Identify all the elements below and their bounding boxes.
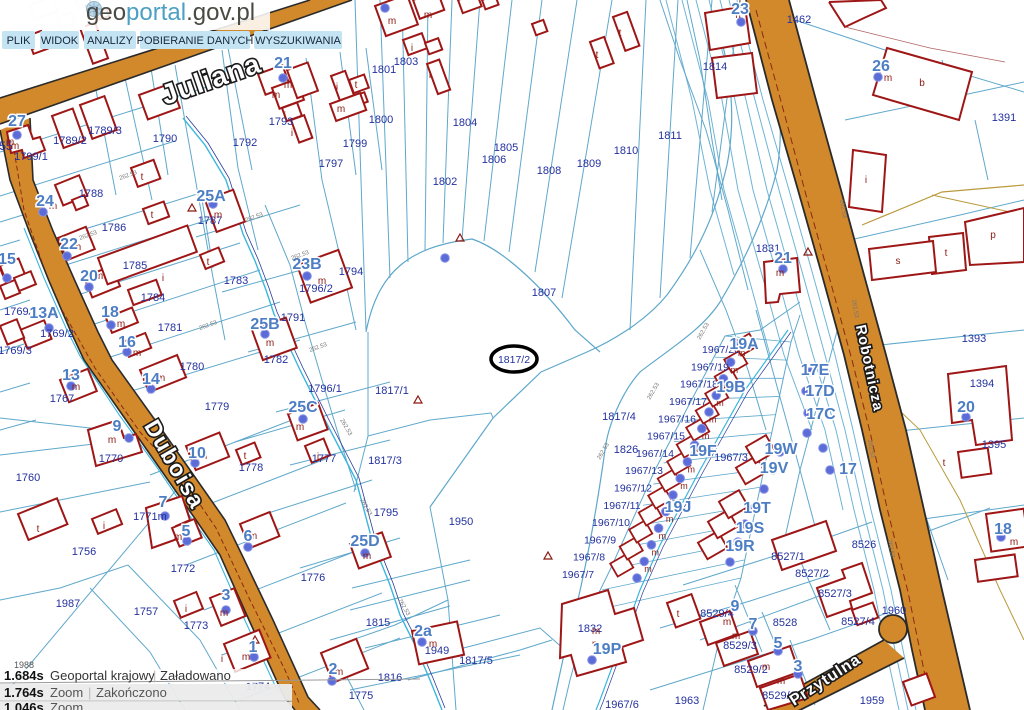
svg-text:m: m — [1010, 537, 1018, 548]
svg-text:m: m — [108, 435, 116, 446]
svg-text:1967/10: 1967/10 — [592, 517, 630, 529]
svg-text:5: 5 — [182, 523, 191, 540]
svg-text:1803: 1803 — [394, 56, 418, 68]
svg-text:19T: 19T — [743, 500, 771, 517]
svg-text:t: t — [943, 458, 946, 469]
svg-text:1771m: 1771m — [133, 511, 167, 523]
svg-text:1967/13: 1967/13 — [625, 465, 663, 477]
svg-text:1967/9: 1967/9 — [584, 534, 616, 546]
svg-text:1788: 1788 — [79, 188, 103, 200]
svg-text:1987: 1987 — [56, 598, 80, 610]
svg-text:i: i — [103, 521, 105, 532]
svg-text:m: m — [680, 481, 688, 491]
svg-text:1967/3: 1967/3 — [714, 452, 748, 464]
svg-text:m: m — [709, 415, 717, 425]
svg-text:1780: 1780 — [180, 361, 204, 373]
svg-text:1782: 1782 — [264, 354, 288, 366]
svg-text:1773: 1773 — [184, 620, 208, 632]
svg-text:1775: 1775 — [349, 690, 373, 702]
svg-text:i: i — [221, 654, 223, 665]
svg-text:m: m — [284, 80, 292, 91]
svg-text:1776: 1776 — [301, 572, 325, 584]
svg-text:19J: 19J — [665, 499, 692, 516]
svg-text:10: 10 — [188, 445, 206, 462]
svg-text:m: m — [731, 365, 739, 375]
svg-text:1967/6: 1967/6 — [605, 699, 639, 710]
svg-text:8527/4: 8527/4 — [841, 616, 875, 628]
svg-text:19W: 19W — [765, 441, 799, 458]
svg-text:1826: 1826 — [614, 444, 638, 456]
svg-text:27: 27 — [8, 113, 26, 130]
svg-text:t: t — [619, 28, 622, 39]
svg-text:1802: 1802 — [433, 176, 457, 188]
svg-text:21: 21 — [274, 55, 292, 72]
svg-text:i: i — [291, 128, 293, 139]
svg-text:26: 26 — [872, 58, 890, 75]
svg-text:5: 5 — [774, 635, 783, 652]
svg-text:Zoom: Zoom — [50, 685, 83, 700]
svg-text:3: 3 — [222, 587, 231, 604]
svg-text:1796/1: 1796/1 — [308, 383, 342, 395]
svg-text:m: m — [272, 90, 280, 101]
svg-text:1967/18: 1967/18 — [680, 379, 718, 391]
svg-text:1791: 1791 — [281, 312, 305, 324]
svg-text:1806: 1806 — [482, 154, 506, 166]
svg-text:25C: 25C — [288, 399, 318, 416]
svg-text:1963: 1963 — [675, 695, 699, 707]
svg-text:POBIERANIE DANYCH: POBIERANIE DANYCH — [137, 35, 254, 47]
svg-text:2a: 2a — [414, 623, 432, 640]
svg-text:m: m — [702, 431, 710, 441]
svg-text:m: m — [214, 210, 222, 221]
svg-text:|: | — [153, 668, 156, 683]
svg-text:9: 9 — [113, 418, 122, 435]
svg-text:Geoportal krajowy: Geoportal krajowy — [50, 668, 155, 683]
svg-text:1810: 1810 — [614, 145, 638, 157]
svg-text:21: 21 — [774, 250, 792, 267]
svg-text:1967/19: 1967/19 — [691, 361, 729, 373]
svg-text:1967/8: 1967/8 — [573, 552, 605, 564]
svg-text:t: t — [207, 257, 210, 268]
svg-text:m: m — [337, 104, 345, 115]
svg-text:i: i — [162, 273, 164, 284]
svg-text:1462: 1462 — [787, 14, 811, 26]
svg-text:1817/2: 1817/2 — [498, 354, 530, 366]
svg-text:19P: 19P — [593, 641, 622, 658]
svg-text:m: m — [777, 676, 785, 687]
svg-text:16: 16 — [118, 334, 136, 351]
svg-text:1796/2: 1796/2 — [299, 283, 333, 295]
svg-text:18: 18 — [101, 304, 119, 321]
svg-text:t: t — [141, 172, 144, 183]
svg-text:m: m — [296, 422, 304, 433]
svg-text:m: m — [651, 547, 659, 557]
svg-text:t: t — [244, 451, 247, 462]
svg-text:15: 15 — [0, 251, 16, 268]
svg-text:25A: 25A — [196, 188, 226, 205]
svg-text:1967/12: 1967/12 — [614, 483, 652, 495]
svg-text:13: 13 — [62, 367, 80, 384]
svg-text:22: 22 — [60, 236, 78, 253]
svg-text:1800: 1800 — [369, 114, 393, 126]
svg-text:1967/17: 1967/17 — [669, 396, 707, 408]
svg-text:1797: 1797 — [319, 158, 343, 170]
svg-text:t: t — [596, 50, 599, 61]
svg-text:1394: 1394 — [970, 378, 994, 390]
svg-text:1784: 1784 — [141, 292, 165, 304]
svg-text:ANALIZY: ANALIZY — [87, 35, 134, 47]
svg-text:8526: 8526 — [852, 539, 876, 551]
svg-text:1772: 1772 — [171, 563, 195, 575]
svg-text:1393: 1393 — [962, 333, 986, 345]
svg-text:1814: 1814 — [703, 61, 727, 73]
svg-text:1795: 1795 — [374, 507, 398, 519]
svg-text:1790: 1790 — [153, 133, 177, 145]
svg-text:1792: 1792 — [233, 137, 257, 149]
svg-text:1950: 1950 — [449, 516, 473, 528]
svg-text:13A: 13A — [29, 305, 59, 322]
svg-text:1.046s: 1.046s — [4, 700, 44, 710]
svg-text:m: m — [220, 608, 228, 619]
svg-text:1395: 1395 — [982, 439, 1006, 451]
svg-text:1967/7: 1967/7 — [562, 569, 594, 581]
svg-text:6: 6 — [244, 528, 253, 545]
svg-text:1817/4: 1817/4 — [602, 411, 636, 423]
svg-text:20: 20 — [957, 399, 975, 416]
svg-text:7: 7 — [749, 616, 758, 633]
svg-text:1.764s: 1.764s — [4, 685, 44, 700]
svg-text:1789/2: 1789/2 — [53, 135, 87, 147]
svg-text:1767: 1767 — [50, 393, 74, 405]
svg-text:i: i — [336, 82, 338, 93]
svg-text:m: m — [318, 276, 326, 287]
svg-text:1799: 1799 — [343, 138, 367, 150]
svg-text:i: i — [411, 43, 413, 54]
svg-text:1967/11: 1967/11 — [603, 500, 640, 512]
svg-text:Zoom: Zoom — [50, 700, 83, 710]
svg-text:1811: 1811 — [658, 130, 682, 142]
svg-text:p: p — [990, 230, 996, 241]
svg-text:m: m — [592, 626, 600, 637]
svg-text:Załadowano: Załadowano — [160, 668, 231, 683]
svg-text:t: t — [37, 524, 40, 535]
svg-text:1760: 1760 — [16, 472, 40, 484]
svg-text:8527/3: 8527/3 — [818, 588, 852, 600]
svg-text:Zakończono: Zakończono — [96, 685, 167, 700]
svg-text:1777: 1777 — [312, 453, 336, 465]
svg-text:t: t — [677, 609, 680, 620]
svg-text:8527/1: 8527/1 — [771, 551, 805, 563]
svg-text:s: s — [896, 256, 901, 267]
svg-text:7: 7 — [159, 494, 168, 511]
svg-text:25D: 25D — [350, 533, 379, 550]
svg-text:m: m — [687, 464, 695, 474]
svg-text:19A: 19A — [729, 336, 759, 353]
svg-text:i: i — [865, 175, 867, 186]
svg-text:m: m — [659, 531, 667, 541]
svg-text:m: m — [388, 16, 396, 27]
svg-text:1789/3: 1789/3 — [88, 125, 122, 137]
svg-text:m: m — [266, 338, 274, 349]
svg-text:19V: 19V — [760, 460, 789, 477]
svg-text:17C: 17C — [806, 406, 836, 423]
svg-text:t: t — [355, 80, 358, 91]
svg-text:m: m — [762, 662, 770, 673]
svg-text:2: 2 — [329, 661, 338, 678]
svg-text:1817/3: 1817/3 — [368, 455, 402, 467]
svg-text:m: m — [644, 564, 652, 574]
svg-text:m: m — [429, 639, 437, 650]
svg-text:1778: 1778 — [239, 462, 263, 474]
svg-text:1769/3: 1769/3 — [0, 345, 32, 357]
svg-text:PLIK: PLIK — [7, 35, 32, 47]
svg-text:1757: 1757 — [134, 606, 158, 618]
svg-text:i: i — [185, 604, 187, 615]
svg-text:m: m — [363, 551, 371, 562]
svg-text:1793: 1793 — [269, 116, 293, 128]
svg-text:m: m — [732, 631, 740, 642]
svg-text:1783: 1783 — [224, 275, 248, 287]
svg-text:19S: 19S — [736, 520, 765, 537]
svg-text:1816: 1816 — [378, 672, 402, 684]
svg-text:1959: 1959 — [860, 695, 884, 707]
svg-text:WYSZUKIWANIA: WYSZUKIWANIA — [255, 35, 341, 47]
svg-text:m: m — [424, 10, 432, 21]
svg-text:19F: 19F — [689, 443, 717, 460]
svg-text:1807: 1807 — [532, 287, 556, 299]
svg-text:m: m — [6, 137, 14, 148]
svg-text:1817/1: 1817/1 — [375, 385, 409, 397]
svg-text:1770: 1770 — [99, 453, 123, 465]
svg-text:t: t — [945, 248, 948, 259]
svg-text:geoportal.gov.pl: geoportal.gov.pl — [86, 0, 255, 26]
svg-text:1769/2: 1769/2 — [40, 328, 74, 340]
svg-text:i: i — [284, 111, 286, 122]
svg-text:1967/14: 1967/14 — [636, 448, 674, 460]
svg-text:t: t — [151, 210, 154, 221]
svg-text:8527/2: 8527/2 — [795, 568, 829, 580]
svg-text:23: 23 — [731, 1, 749, 18]
svg-text:i: i — [317, 452, 319, 463]
svg-text:|: | — [88, 685, 91, 700]
svg-text:1781: 1781 — [158, 322, 182, 334]
svg-text:25B: 25B — [250, 316, 279, 333]
svg-text:m: m — [776, 268, 784, 279]
svg-text:1779: 1779 — [205, 401, 229, 413]
svg-text:1.684s: 1.684s — [4, 668, 44, 683]
svg-text:17E: 17E — [801, 362, 830, 379]
svg-text:14: 14 — [142, 371, 160, 388]
svg-text:18: 18 — [994, 521, 1012, 538]
svg-text:1: 1 — [249, 639, 258, 656]
svg-text:m: m — [716, 398, 724, 408]
svg-text:17D: 17D — [805, 383, 834, 400]
svg-text:19B: 19B — [716, 379, 745, 396]
svg-text:17: 17 — [839, 461, 857, 478]
svg-text:1785: 1785 — [123, 260, 147, 272]
svg-text:1815: 1815 — [366, 617, 390, 629]
svg-text:1805: 1805 — [494, 142, 518, 154]
svg-text:1809: 1809 — [577, 158, 601, 170]
svg-text:1391: 1391 — [992, 112, 1016, 124]
svg-text:m: m — [723, 617, 731, 628]
svg-text:8528: 8528 — [773, 617, 797, 629]
svg-text:20: 20 — [80, 268, 98, 285]
svg-text:1786: 1786 — [102, 222, 126, 234]
svg-text:9: 9 — [731, 598, 740, 615]
svg-text:i: i — [429, 70, 431, 81]
svg-text:1804: 1804 — [453, 117, 477, 129]
svg-text:1808: 1808 — [537, 165, 561, 177]
svg-text:1967/15: 1967/15 — [647, 431, 685, 443]
svg-text:WIDOK: WIDOK — [41, 35, 79, 47]
svg-text:b: b — [919, 78, 925, 89]
svg-text:1794: 1794 — [339, 266, 363, 278]
svg-text:24: 24 — [36, 193, 54, 210]
svg-text:1799/1: 1799/1 — [14, 151, 48, 163]
svg-text:1817/5: 1817/5 — [459, 655, 493, 667]
svg-text:1801: 1801 — [372, 64, 396, 76]
svg-text:3: 3 — [794, 658, 803, 675]
svg-text:1967/16: 1967/16 — [658, 413, 696, 425]
svg-text:1960: 1960 — [882, 605, 906, 617]
svg-text:19R: 19R — [725, 538, 755, 555]
svg-text:1756: 1756 — [72, 546, 96, 558]
